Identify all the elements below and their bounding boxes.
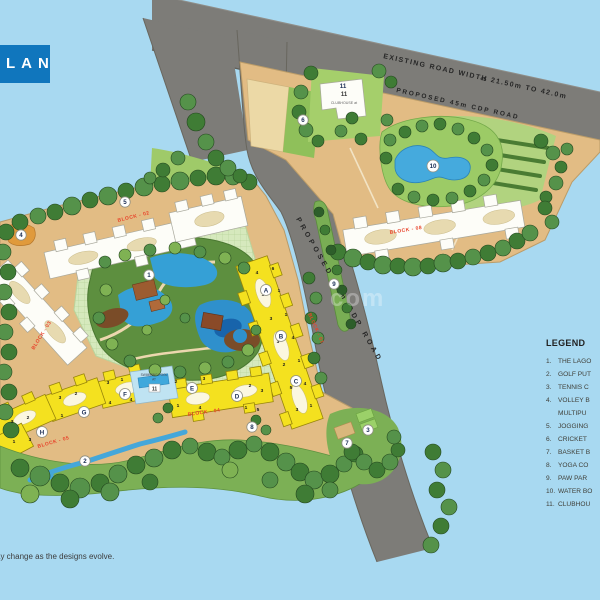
svg-text:7: 7 [345,440,349,447]
marker-block-g: G [79,407,90,418]
marker-jogging: 5 [120,197,130,207]
svg-text:A: A [264,287,269,294]
site-plan-page: EXISTING ROAD WIDTH 21.50m TO 42.0m 45 P… [0,0,600,600]
svg-text:1: 1 [310,403,313,409]
legend-item: 8.YOGA CO [546,459,600,472]
svg-text:3: 3 [366,427,370,434]
svg-text:4: 4 [109,400,112,406]
svg-text:1: 1 [278,288,281,294]
marker-block-h: H [37,427,48,438]
svg-text:4: 4 [199,405,202,411]
marker-block-d: D [232,391,243,402]
svg-text:5: 5 [123,199,127,206]
legend-item: 6.CRICKET [546,433,600,446]
svg-text:3: 3 [296,407,299,413]
svg-text:1: 1 [245,405,248,411]
svg-text:B: B [279,333,284,340]
site-plan-map: EXISTING ROAD WIDTH 21.50m TO 42.0m 45 P… [0,0,600,600]
svg-text:4: 4 [304,381,307,387]
marker-golf-putting: 2 [80,456,90,466]
svg-text:1: 1 [13,439,16,445]
svg-text:1: 1 [147,272,151,279]
svg-text:1: 1 [177,403,180,409]
plan-title: LAN [0,45,50,83]
svg-text:2: 2 [75,391,78,397]
legend-item: 3.TENNIS C [546,381,600,394]
marker-block-e: E [187,383,198,394]
marker-block-a: A [261,285,272,296]
svg-text:3: 3 [261,388,264,394]
legend-item: 10.WATER BO [546,485,600,498]
marker-basketball: 7 [342,438,352,448]
svg-text:4: 4 [130,397,133,403]
svg-text:1: 1 [285,312,288,318]
svg-text:H: H [40,429,45,436]
marker-block-b: B [276,331,287,342]
svg-text:2: 2 [249,383,252,389]
pool-parcel-number: 11 [152,387,158,393]
svg-text:1: 1 [298,358,301,364]
legend-title: LEGEND [546,338,600,348]
svg-text:C: C [294,378,299,385]
svg-text:2: 2 [283,362,286,368]
svg-text:4: 4 [19,232,23,239]
svg-text:4: 4 [256,270,259,276]
svg-text:3: 3 [29,437,32,443]
svg-text:2: 2 [83,458,87,465]
svg-text:1: 1 [121,377,124,383]
legend-item: 1.THE LAGO [546,355,600,368]
marker-clubhouse: 11 [340,83,347,90]
vacant-plot [247,79,289,152]
pool-parcel-line1: SWIMMING POOL [141,373,168,377]
svg-text:8: 8 [250,424,254,431]
clubhouse-number: 11 [341,92,348,98]
marker-block-f: F [120,389,131,400]
legend-item: 2.GOLF PUT [546,368,600,381]
svg-text:3: 3 [203,376,206,382]
marker-cricket: 6 [298,115,308,125]
svg-text:2: 2 [27,415,30,421]
svg-text:6: 6 [272,266,275,272]
marker-lagoon: 1 [144,270,154,280]
svg-text:F: F [123,391,127,398]
legend-item: MULTIPU [546,407,600,420]
watermark: com [330,285,385,312]
pool-parcel-line2: AT [152,378,156,382]
plan-title-box: LAN [0,45,50,83]
legend-item: 7.BASKET B [546,446,600,459]
svg-text:D: D [235,393,240,400]
svg-text:6: 6 [301,117,305,124]
legend-item: 11.CLUBHOU [546,498,600,511]
svg-text:G: G [82,409,87,416]
svg-text:3: 3 [270,316,273,322]
svg-text:3: 3 [59,395,62,401]
svg-text:3: 3 [107,380,110,386]
clubhouse-label: CLUBHOUSE at [331,101,357,105]
svg-text:E: E [190,385,194,392]
svg-text:4: 4 [292,335,295,341]
marker-tennis: 3 [363,425,373,435]
svg-text:11: 11 [340,83,347,90]
marker-water-body: 10 [427,160,439,172]
marker-volleyball: 4 [16,230,26,240]
svg-text:1: 1 [61,413,64,419]
svg-text:3: 3 [11,419,14,425]
disclaimer-note: ay change as the designs evolve. [0,552,114,561]
legend-item: 5.JOGGING [546,420,600,433]
marker-yoga: 8 [247,422,257,432]
svg-text:5: 5 [257,407,260,413]
svg-text:2: 2 [175,379,178,385]
svg-text:10: 10 [430,163,437,170]
legend-item: 4.VOLLEY B [546,394,600,407]
marker-block-c: C [291,376,302,387]
svg-text:5: 5 [290,385,293,391]
legend-item: 9.PAW PAR [546,472,600,485]
legend: LEGEND 1.THE LAGO 2.GOLF PUT 3.TENNIS C … [546,338,600,511]
